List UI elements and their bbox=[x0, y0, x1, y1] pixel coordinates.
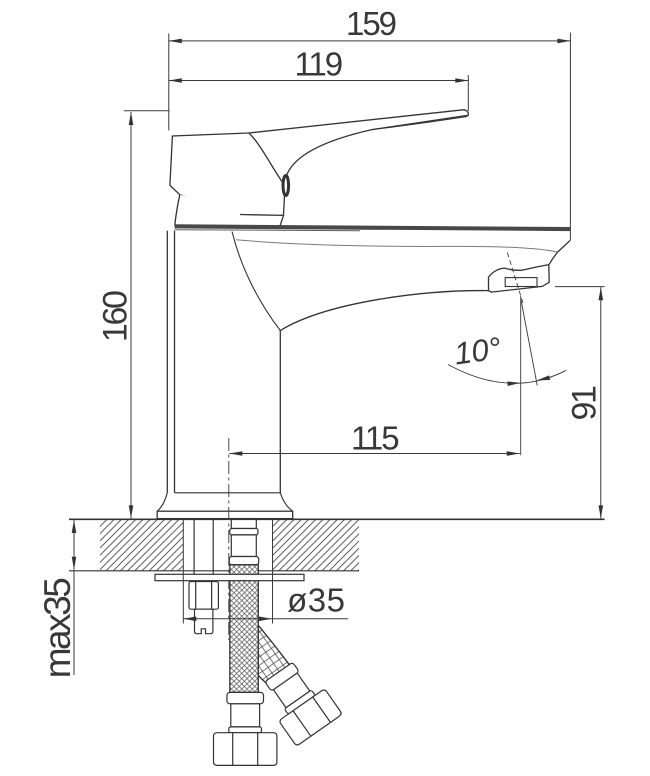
svg-text:max35: max35 bbox=[37, 578, 78, 678]
svg-text:160: 160 bbox=[96, 291, 134, 342]
svg-text:115: 115 bbox=[351, 420, 398, 457]
svg-text:159: 159 bbox=[346, 5, 396, 42]
svg-text:91: 91 bbox=[566, 386, 604, 421]
svg-text:119: 119 bbox=[294, 46, 341, 83]
svg-text:10°: 10° bbox=[452, 330, 503, 371]
svg-text:ø35: ø35 bbox=[287, 582, 345, 619]
